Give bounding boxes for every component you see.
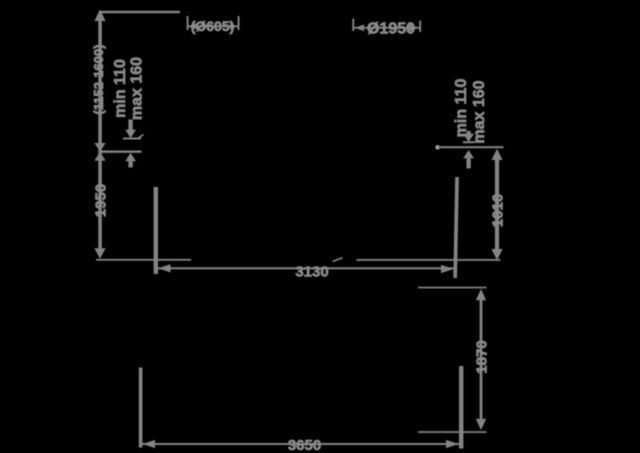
svg-text:max 160: max 160 — [129, 57, 146, 120]
svg-text:Ø1950: Ø1950 — [367, 20, 415, 37]
svg-text:min 110: min 110 — [453, 79, 470, 138]
svg-text:(Ø605): (Ø605) — [191, 18, 235, 34]
svg-text:1950: 1950 — [93, 184, 110, 217]
svg-text:(1152-1600): (1152-1600) — [91, 44, 106, 114]
svg-text:1010: 1010 — [490, 194, 507, 227]
svg-text:3130: 3130 — [295, 263, 328, 280]
svg-text:1870: 1870 — [474, 340, 491, 373]
svg-text:3650: 3650 — [288, 437, 321, 453]
svg-text:max 160: max 160 — [471, 80, 488, 143]
svg-text:min 110: min 110 — [112, 59, 129, 118]
